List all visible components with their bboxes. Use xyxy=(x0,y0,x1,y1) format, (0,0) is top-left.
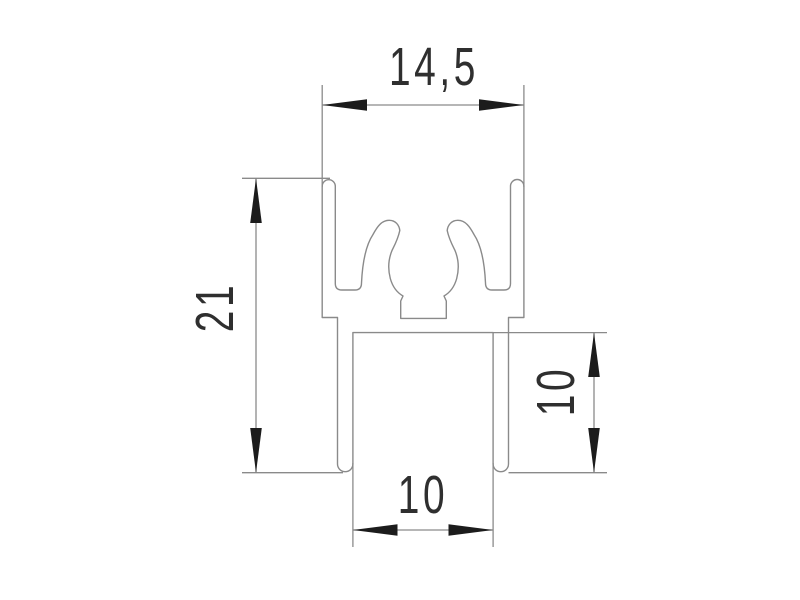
profile-outline xyxy=(322,179,524,471)
dim-label-bottom-width: 10 xyxy=(398,468,448,522)
arrow-right-down xyxy=(588,428,600,473)
dim-label-right-height: 10 xyxy=(529,366,583,416)
arrow-top-left xyxy=(322,99,367,111)
arrow-top-right xyxy=(479,99,524,111)
technical-drawing-canvas: 14,5 21 10 10 xyxy=(0,0,800,600)
arrow-left-up xyxy=(250,178,262,223)
arrow-bottom-left xyxy=(353,524,398,536)
arrow-left-down xyxy=(250,428,262,473)
dim-label-left-height: 21 xyxy=(188,282,242,332)
arrow-bottom-right xyxy=(449,524,494,536)
arrow-right-up xyxy=(588,333,600,377)
dim-label-top-width: 14,5 xyxy=(389,40,479,94)
